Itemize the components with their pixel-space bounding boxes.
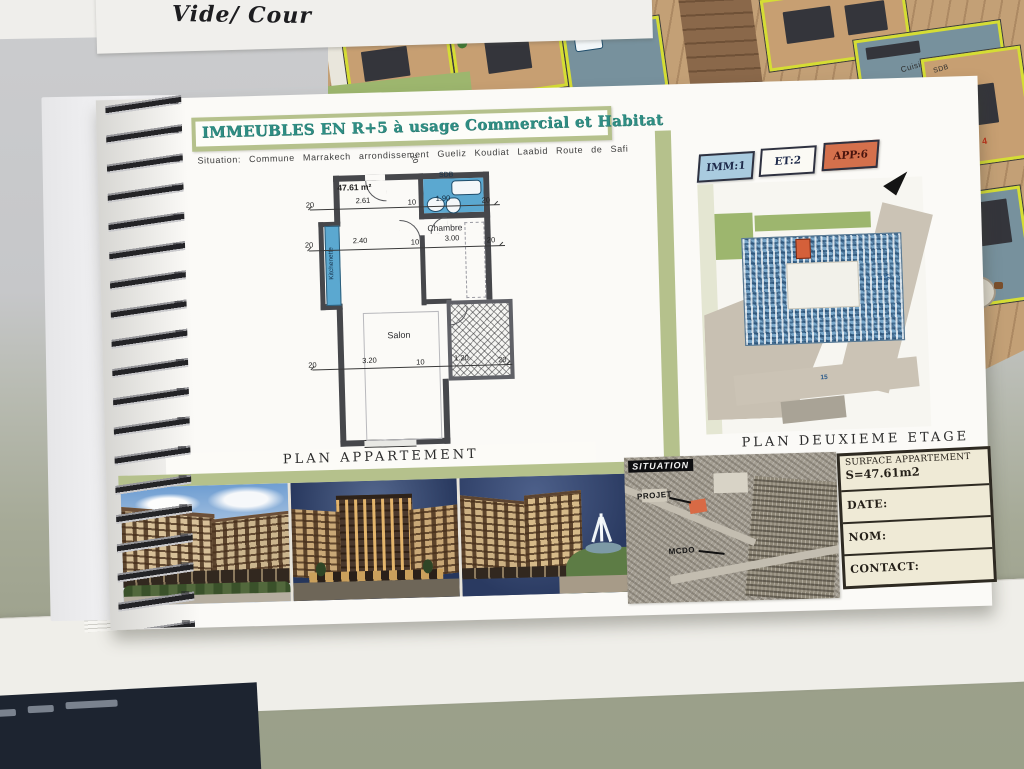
bed-furniture: [844, 0, 888, 35]
obscured-text-marks: [0, 709, 16, 718]
north-arrow-icon: N: [889, 167, 906, 194]
bed-furniture: [361, 46, 411, 82]
path: [559, 575, 629, 593]
building-rendering-2: [290, 478, 460, 601]
dimension-label: 2.61: [356, 196, 371, 205]
north-label: N: [893, 179, 900, 189]
dimension-label: 20: [498, 355, 507, 364]
room-label-sdb: SDB: [439, 171, 454, 178]
salon-inner-outline: [363, 311, 443, 441]
dimension-label: 20: [482, 195, 491, 204]
legend-app: APP:6: [822, 140, 880, 172]
dimension-label: 10: [416, 357, 425, 366]
booklet-page: IMMEUBLES EN R+5 à usage Commercial et H…: [96, 76, 992, 630]
counter-furniture: [865, 41, 920, 60]
building-facade: [409, 505, 459, 579]
contact-row: CONTACT:: [844, 547, 993, 586]
plaza: [293, 579, 460, 601]
header-inner: IMMEUBLES EN R+5 à usage Commercial et H…: [195, 110, 608, 146]
wall: [420, 235, 427, 305]
apartment-floor-plan: SDB Kitchenette Chambre Salon 47.61 m² 2…: [323, 159, 531, 464]
chair: [994, 282, 1003, 289]
dimension-label: 3.00: [445, 233, 460, 242]
site-plan: 15 15 N: [697, 176, 931, 434]
bathtub: [451, 180, 481, 196]
wall: [443, 379, 451, 444]
plan-caption: PLAN APPARTEMENT: [283, 447, 479, 467]
project-arrow: [669, 497, 691, 503]
date-label: DATE:: [847, 497, 888, 512]
road-number: 15: [820, 374, 827, 381]
legend-imm: IMM:1: [697, 151, 755, 183]
legend-app-label: APP:6: [833, 148, 869, 162]
aerial-building: [713, 472, 747, 493]
legend-imm-label: IMM:1: [706, 160, 746, 175]
dimension-label: 3.20: [362, 356, 377, 365]
obscured-text-marks: [65, 700, 117, 710]
nom-label: NOM:: [848, 529, 886, 544]
highlighted-apartment: [795, 239, 811, 260]
handwritten-note: Vide/ Cour: [172, 1, 312, 29]
dimension-label: 1.90: [436, 194, 451, 203]
situation-map: SITUATION PROJET MCDO: [624, 452, 840, 604]
landmark-arrow: [699, 550, 725, 554]
wall: [337, 308, 347, 447]
situation-title: SITUATION: [628, 459, 693, 473]
photo-scene: Cuisine SDB 4 3 Cuisine Vide/ Cour: [0, 0, 1024, 769]
legend-et-label: ET:2: [774, 154, 802, 168]
dimension-label: 10: [411, 237, 420, 246]
bed-furniture: [783, 6, 835, 44]
dimension-label: 2.40: [353, 236, 368, 245]
tree: [422, 559, 432, 573]
panel-divider-green: [655, 130, 681, 474]
obscured-text-marks: [28, 705, 54, 713]
building-renderings: [121, 474, 630, 606]
info-box: SURFACE APPARTEMENT S=47.61m2 DATE: NOM:…: [837, 446, 997, 589]
courtyard: [786, 261, 860, 310]
dimension-label: 20: [487, 235, 496, 244]
bg-room-label: SDB: [933, 64, 950, 75]
dimension-label: 10: [408, 198, 417, 207]
area-label: 47.61 m²: [337, 182, 371, 193]
landmark-label: MCDO: [668, 545, 695, 556]
dark-booklet-corner: [0, 682, 263, 769]
site-green-band: [754, 211, 871, 231]
cloud: [207, 486, 284, 514]
dense-buildings-area: [745, 476, 840, 602]
site-plan-caption: PLAN DEUXIEME ETAGE: [741, 429, 969, 450]
contact-label: CONTACT:: [850, 560, 920, 576]
page-title: IMMEUBLES EN R+5 à usage Commercial et H…: [201, 111, 663, 142]
closet-dashed: [464, 222, 486, 299]
building-rendering-3: [460, 474, 630, 597]
legend-et: ET:2: [759, 145, 817, 177]
room-label-chambre: Chambre: [427, 222, 462, 233]
dimension-label: 1.20: [454, 353, 469, 362]
